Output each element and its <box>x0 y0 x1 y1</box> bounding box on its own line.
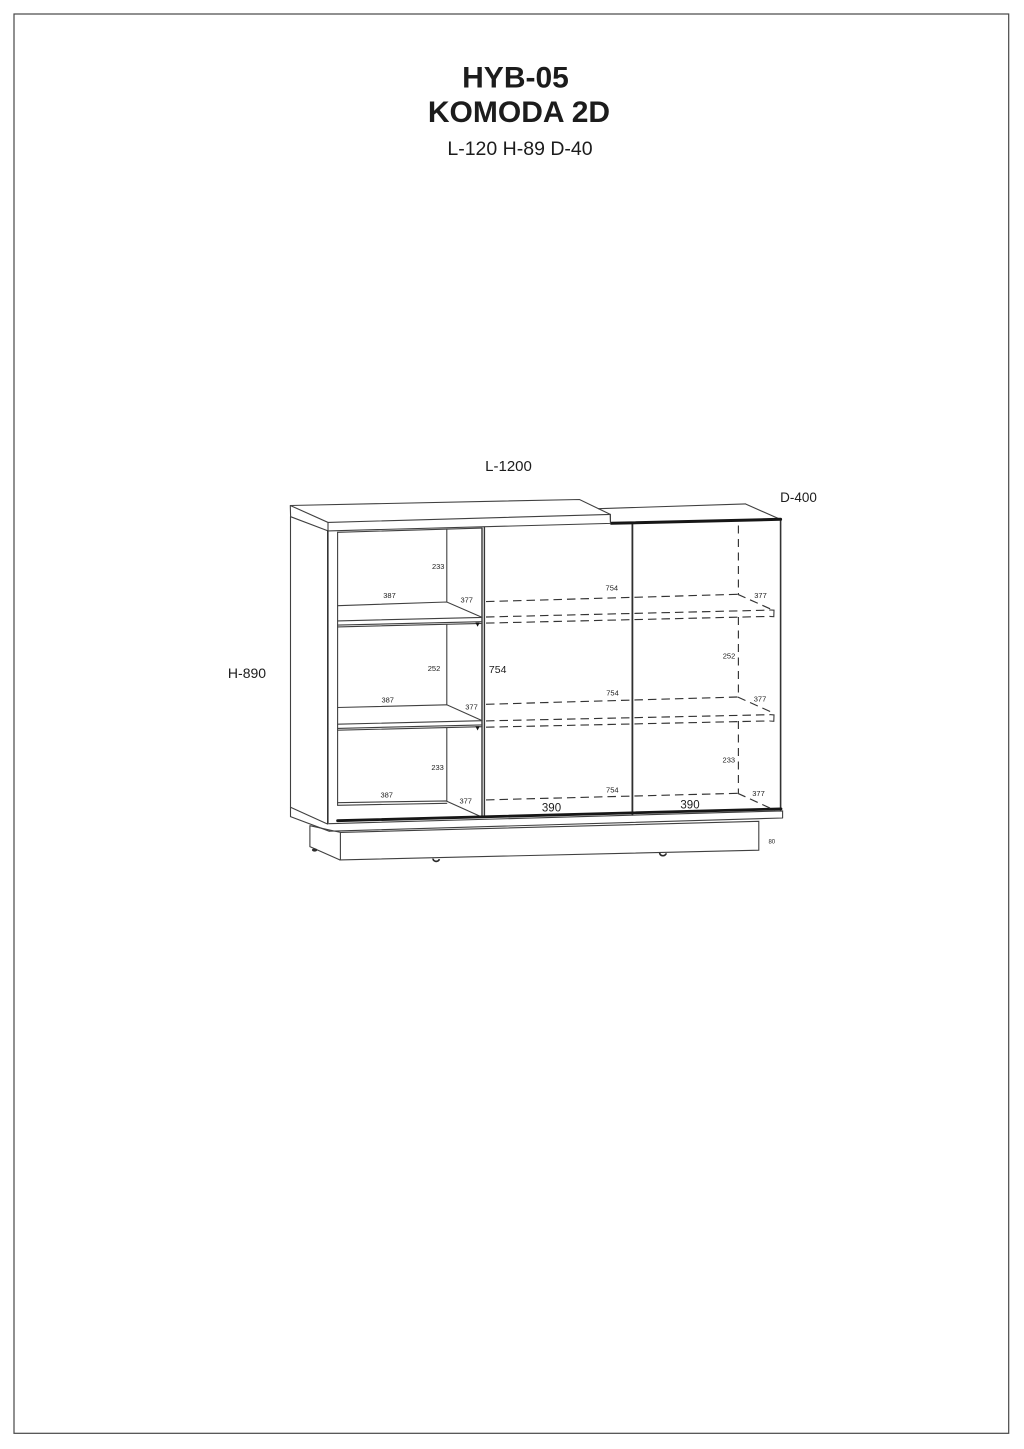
svg-text:754: 754 <box>489 664 507 676</box>
svg-text:390: 390 <box>680 800 699 812</box>
svg-text:252: 252 <box>428 664 441 673</box>
svg-text:390: 390 <box>542 803 561 815</box>
svg-text:754: 754 <box>606 786 619 795</box>
svg-text:377: 377 <box>754 694 767 703</box>
svg-text:D-400: D-400 <box>780 490 817 505</box>
svg-text:754: 754 <box>606 689 619 698</box>
svg-text:252: 252 <box>723 651 736 660</box>
svg-text:KOMODA 2D: KOMODA 2D <box>428 96 610 129</box>
svg-text:387: 387 <box>380 790 393 799</box>
svg-text:233: 233 <box>431 763 444 772</box>
svg-text:377: 377 <box>459 796 472 805</box>
svg-text:233: 233 <box>432 562 445 571</box>
svg-text:233: 233 <box>723 756 736 765</box>
svg-text:377: 377 <box>465 703 478 712</box>
svg-text:L-1200: L-1200 <box>485 458 532 475</box>
svg-text:80: 80 <box>768 839 775 845</box>
svg-text:377: 377 <box>752 789 765 798</box>
svg-text:377: 377 <box>460 595 473 604</box>
svg-text:387: 387 <box>381 695 394 704</box>
svg-text:HYB-05: HYB-05 <box>462 61 569 94</box>
svg-text:L-120 H-89 D-40: L-120 H-89 D-40 <box>447 138 592 160</box>
svg-text:754: 754 <box>606 584 619 593</box>
svg-text:H-890: H-890 <box>228 665 266 681</box>
svg-text:387: 387 <box>383 591 396 600</box>
svg-text:377: 377 <box>754 591 767 600</box>
